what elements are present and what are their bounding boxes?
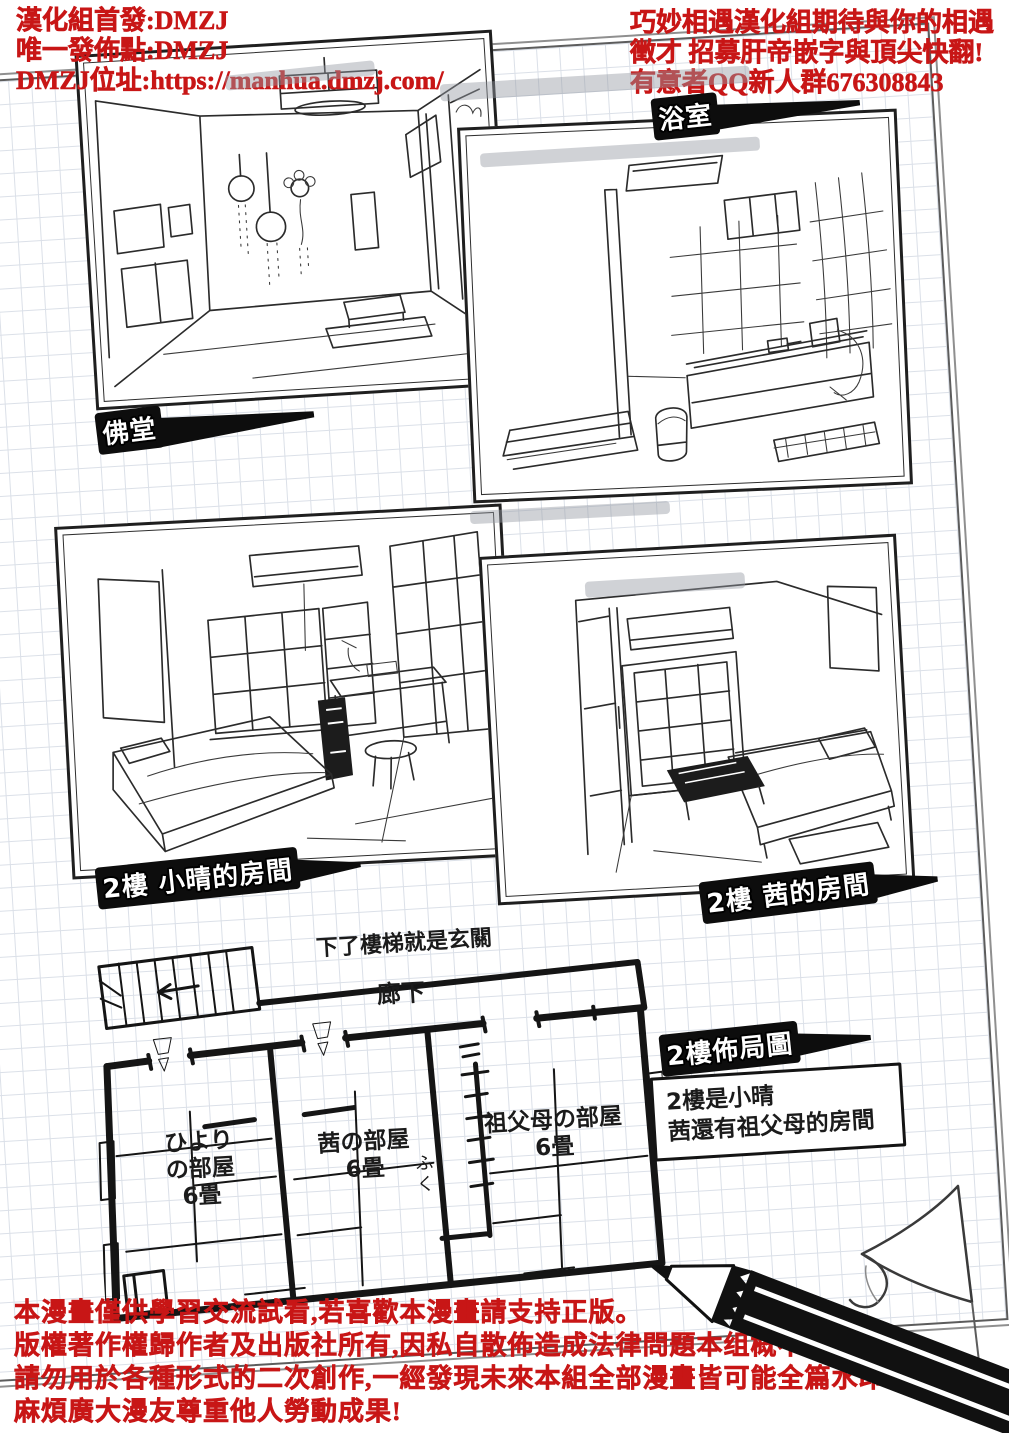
grandparents-room-label: 祖父母の部屋 6畳	[468, 1102, 639, 1166]
credits-line-1: 漢化組首發:DMZJ	[16, 6, 444, 36]
corner-art	[640, 1180, 1009, 1433]
panel-koharu-room	[54, 504, 520, 880]
tag-akane-swoosh	[867, 866, 940, 900]
koharu-room-sketch	[67, 516, 508, 867]
tag-bathroom-label: 浴室	[650, 92, 720, 141]
credits-line-2: 唯一發佈點:DMZJ	[16, 36, 444, 66]
tag-koharu-swoosh	[290, 852, 362, 883]
hiyori-room-label: ひより の部屋 6畳	[143, 1126, 258, 1214]
tag-altar-label: 佛堂	[94, 405, 165, 455]
panel-bathroom	[457, 109, 913, 504]
akane-room-sketch	[491, 546, 903, 892]
recruit-line-1: 巧妙相遇漢化組期待與你的相遇	[630, 8, 994, 38]
layout-note-box: 2樓是小晴 茜還有祖父母的房間	[650, 1062, 907, 1161]
recruit-line-2: 徵才 招募肝帝嵌字與頂尖快翻!	[630, 38, 994, 68]
floor-plan: 下了樓梯就是玄關 廊下 ひより の部屋 6畳 茜の部屋 6畳 祖父母の部屋 6畳…	[84, 913, 677, 1337]
tag-layout-swoosh	[790, 1025, 872, 1057]
bathroom-sketch	[470, 121, 901, 491]
closet-label: ふく	[409, 1153, 439, 1197]
manga-credit-page: 漢化組首發:DMZJ 唯一發佈點:DMZJ DMZJ位址:https://man…	[0, 0, 1009, 1433]
corridor-label: 廊下	[376, 979, 426, 1009]
